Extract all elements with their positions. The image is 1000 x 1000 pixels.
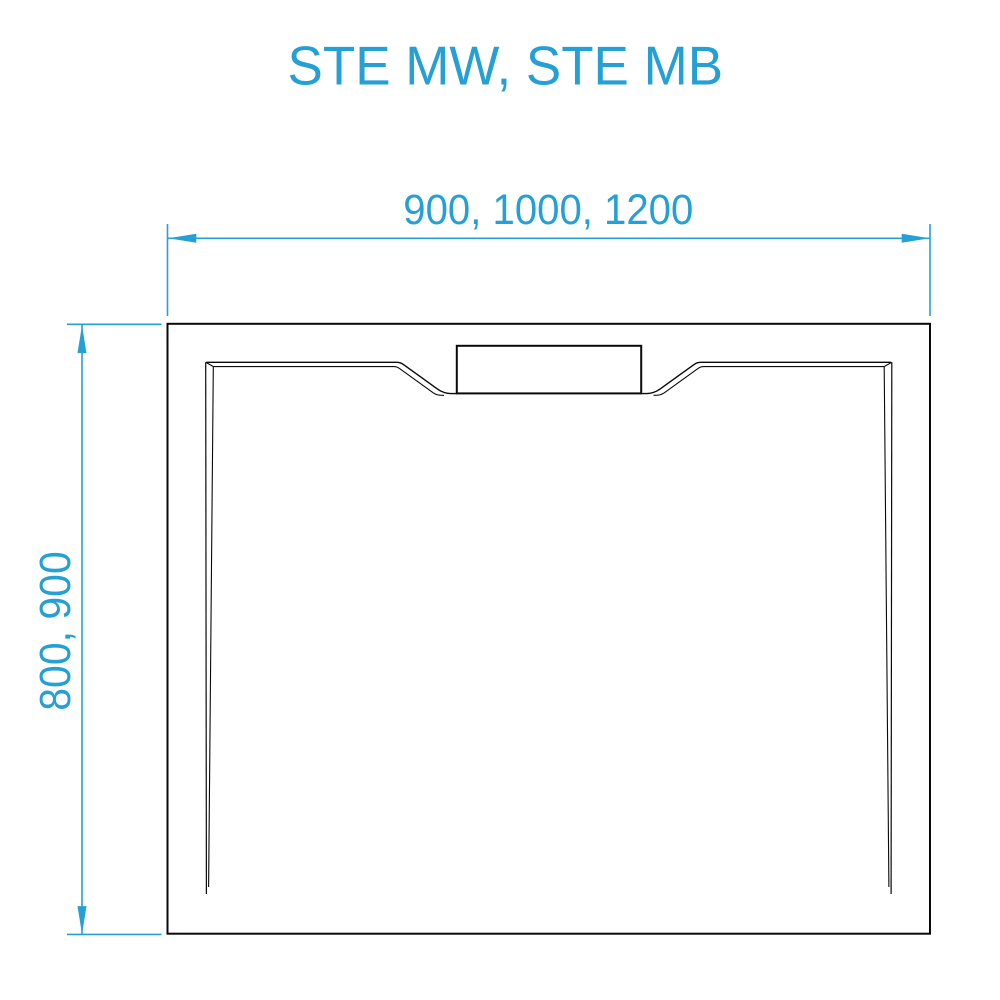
svg-text:900, 1000, 1200: 900, 1000, 1200 — [403, 187, 693, 234]
svg-text:STE MW, STE MB: STE MW, STE MB — [288, 36, 724, 97]
svg-text:800, 900: 800, 900 — [31, 551, 80, 711]
